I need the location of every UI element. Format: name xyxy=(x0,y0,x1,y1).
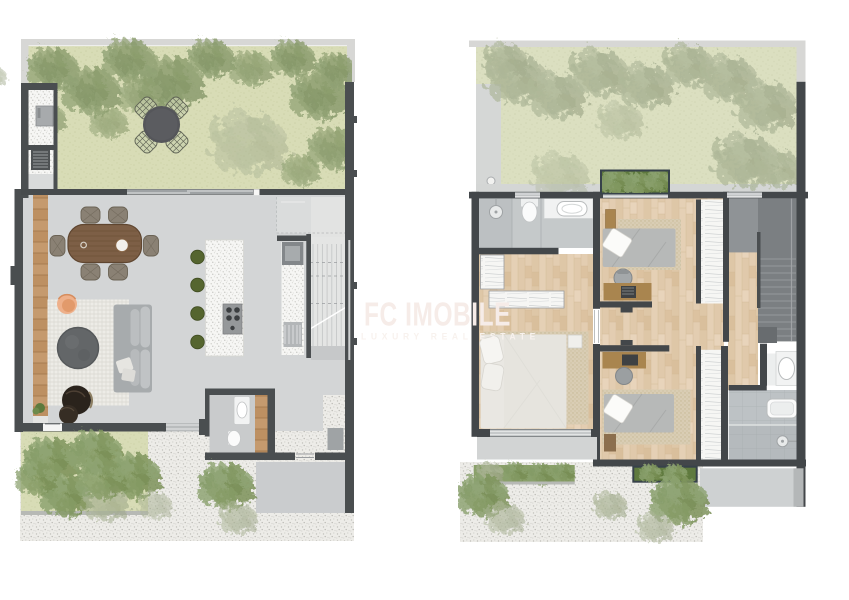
svg-text:FC IMOBILE: FC IMOBILE xyxy=(364,296,511,334)
svg-text:LUXURY REAL ESTATE: LUXURY REAL ESTATE xyxy=(361,331,540,342)
